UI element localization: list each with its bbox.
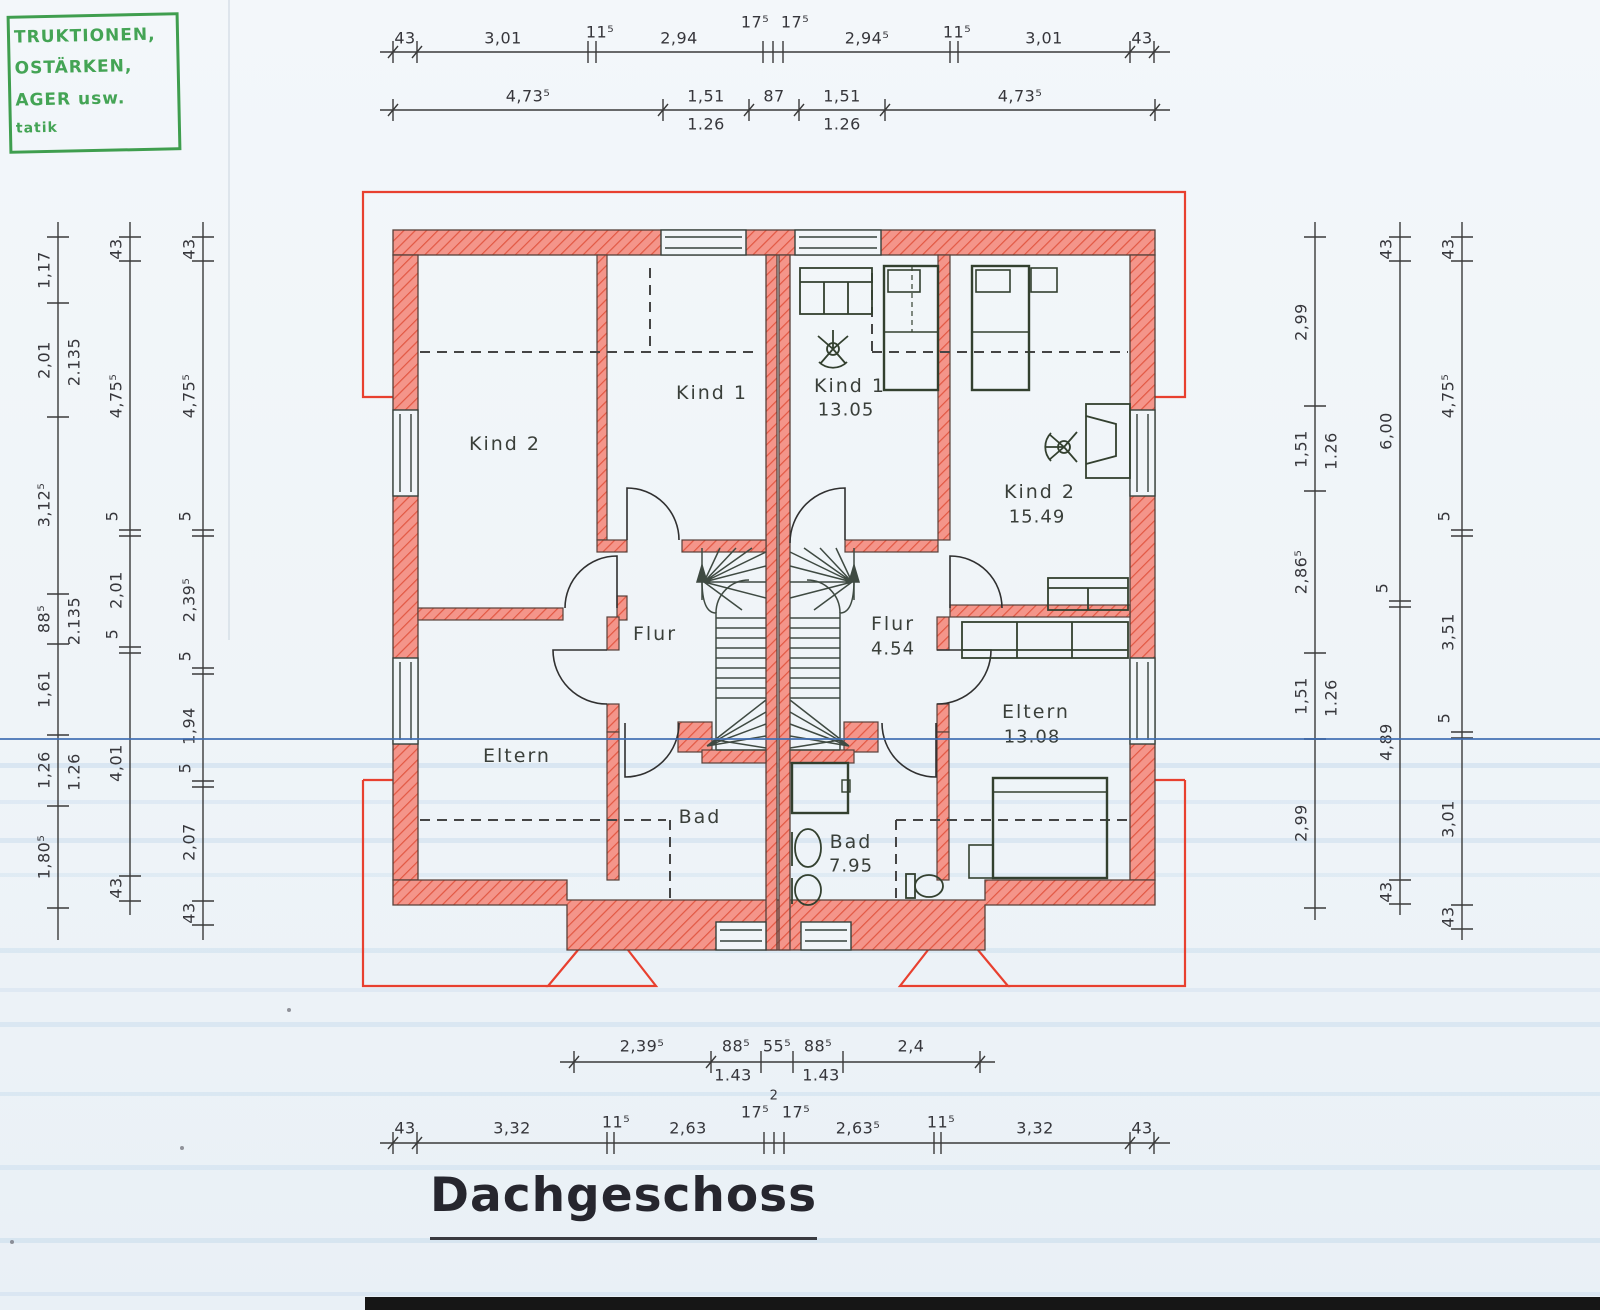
dim-label: 2,39⁵	[180, 578, 199, 623]
room-area-right-eltern: 13.08	[1004, 727, 1061, 748]
dim-label: 3,51	[1439, 613, 1458, 651]
dim-label: 3,32	[493, 1119, 531, 1138]
dim-label: 5	[103, 629, 122, 640]
dim-label: 11⁵	[927, 1113, 955, 1132]
shower	[792, 763, 850, 813]
dim-label: 1,26	[35, 751, 54, 789]
dim-label: 11⁵	[586, 23, 614, 42]
dim-label: 2.135	[65, 338, 84, 386]
dim-label: 4,01	[107, 744, 126, 782]
room-label-left-eltern: Eltern	[483, 745, 551, 767]
dim-label: 3,32	[1016, 1119, 1054, 1138]
dim-label: 4,75⁵	[107, 374, 126, 419]
dim-label: 1,61	[35, 670, 54, 708]
dim-label: 5	[1435, 713, 1454, 724]
dim-label: 43	[107, 238, 126, 259]
dim-label: 2,01	[107, 571, 126, 609]
room-label-left-kind2: Kind 2	[469, 433, 541, 455]
green-approval-stamp: TRUKTIONEN, OSTÄRKEN, AGER usw. tatik	[7, 12, 182, 154]
dim-label: 5	[176, 511, 195, 522]
room-label-left-flur: Flur	[633, 623, 677, 645]
room-label-right-bad: Bad	[830, 831, 873, 853]
room-label-right-eltern: Eltern	[1002, 701, 1070, 723]
swivel-chair-kind2	[1045, 432, 1077, 462]
dim-label: 2,94	[660, 29, 698, 48]
dim-label: 43	[1439, 906, 1458, 927]
dim-label: 1,17	[35, 251, 54, 289]
bed-kind1	[884, 266, 938, 390]
dim-label: 88⁵	[804, 1037, 832, 1056]
dim-label: 88⁵	[35, 605, 54, 633]
dim-label: 2,86⁵	[1292, 550, 1311, 595]
room-area-right-flur: 4.54	[871, 639, 915, 660]
swivel-chair-kind1	[818, 330, 848, 368]
room-label-right-flur: Flur	[871, 613, 915, 635]
toilet	[906, 874, 943, 898]
dim-label: 3,12⁵	[35, 483, 54, 528]
room-area-right-kind1: 13.05	[818, 400, 875, 421]
dim-note: 2	[770, 1089, 779, 1104]
dim-label: 2,07	[180, 823, 199, 861]
dim-label: 1.26	[1322, 432, 1341, 470]
dimension-lines	[47, 41, 1473, 1154]
dim-label: 2,4	[898, 1037, 925, 1056]
dim-label: 43	[394, 29, 415, 48]
dim-label: 2.135	[65, 597, 84, 645]
dim-label: 43	[1439, 238, 1458, 259]
dim-label: 2,99	[1292, 804, 1311, 842]
dim-label: 1.26	[823, 115, 861, 134]
dim-label: 87	[763, 87, 784, 106]
dim-label: 2,39⁵	[620, 1037, 665, 1056]
dim-label: 2,63	[669, 1119, 707, 1138]
washbasins	[792, 829, 821, 905]
dim-label: 17⁵	[741, 13, 769, 32]
dim-label: 6,00	[1377, 412, 1396, 450]
dim-label: 43	[394, 1119, 415, 1138]
dim-label: 1,51	[1292, 430, 1311, 468]
room-area-right-kind2: 15.49	[1009, 507, 1066, 528]
scanned-floor-plan-page: Kind 2 Kind 1 Flur Eltern Bad Kind 1 13.…	[0, 0, 1600, 1310]
stamp-line: TRUKTIONEN,	[14, 19, 177, 54]
desk-kind2	[1086, 404, 1130, 478]
dim-label: 5	[103, 511, 122, 522]
dim-label: 5	[176, 763, 195, 774]
dim-label: 1.26	[687, 115, 725, 134]
dim-label: 1.43	[714, 1066, 752, 1085]
page-title: Dachgeschoss	[430, 1168, 817, 1240]
sideboard-eltern	[962, 622, 1128, 658]
dim-label: 5	[176, 651, 195, 662]
dim-label: 43	[1377, 238, 1396, 259]
scan-bottom-band	[365, 1297, 1600, 1310]
dim-label: 4,75⁵	[1439, 374, 1458, 419]
dim-label: 55⁵	[763, 1037, 791, 1056]
staircase-left	[697, 548, 766, 750]
dim-label: 1,51	[687, 87, 725, 106]
dim-label: 11⁵	[602, 1113, 630, 1132]
dim-label: 2,99	[1292, 303, 1311, 341]
dim-label: 1.26	[1322, 679, 1341, 717]
stamp-line: OSTÄRKEN,	[14, 51, 177, 86]
dim-label: 43	[180, 902, 199, 923]
dim-label: 1.26	[65, 753, 84, 791]
dim-label: 4,73⁵	[998, 87, 1043, 106]
dim-label: 1,51	[1292, 677, 1311, 715]
dim-label: 2,94⁵	[845, 29, 890, 48]
dim-label: 4,73⁵	[506, 87, 551, 106]
dim-label: 1,51	[823, 87, 861, 106]
furniture	[792, 266, 1130, 905]
dim-label: 43	[1131, 29, 1152, 48]
stamp-line: AGER usw.	[15, 82, 178, 117]
stamp-line: tatik	[16, 114, 179, 143]
scan-blue-line	[0, 738, 1600, 740]
dim-label: 11⁵	[943, 23, 971, 42]
dim-label: 17⁵	[741, 1103, 769, 1122]
dim-label: 17⁵	[781, 13, 809, 32]
bed-kind2	[972, 266, 1057, 390]
dim-label: 43	[180, 238, 199, 259]
exterior-walls	[393, 230, 1155, 950]
desk-kind1	[800, 268, 872, 314]
dim-label: 88⁵	[722, 1037, 750, 1056]
dim-label: 4,89	[1377, 723, 1396, 761]
scan-speck	[10, 1240, 14, 1244]
room-label-right-kind2: Kind 2	[1004, 481, 1076, 503]
staircase-right	[790, 548, 859, 750]
dim-label: 2,01	[35, 341, 54, 379]
room-label-right-kind1: Kind 1	[814, 375, 886, 397]
scan-speck	[287, 1008, 291, 1012]
dim-label: 3,01	[484, 29, 522, 48]
dim-label: 2,63⁵	[836, 1119, 881, 1138]
double-bed-eltern	[969, 778, 1107, 878]
dim-label: 3,01	[1439, 800, 1458, 838]
dim-label: 1.43	[802, 1066, 840, 1085]
dim-label: 5	[1435, 511, 1454, 522]
dim-label: 43	[1131, 1119, 1152, 1138]
dim-label: 1,80⁵	[35, 835, 54, 880]
dim-label: 43	[1377, 881, 1396, 902]
scan-speck	[180, 1146, 184, 1150]
dim-label: 17⁵	[782, 1103, 810, 1122]
dim-label: 4,75⁵	[180, 374, 199, 419]
room-label-left-kind1: Kind 1	[676, 382, 748, 404]
room-label-left-bad: Bad	[679, 806, 722, 828]
dim-label: 43	[107, 877, 126, 898]
dim-label: 5	[1373, 583, 1392, 594]
dim-label: 3,01	[1025, 29, 1063, 48]
room-area-right-bad: 7.95	[829, 856, 873, 877]
